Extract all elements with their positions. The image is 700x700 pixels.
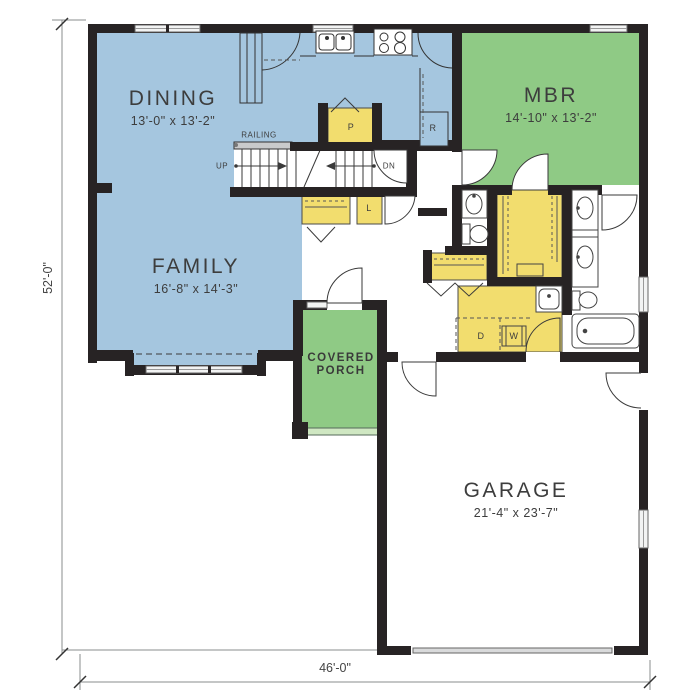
window-mullion (208, 366, 211, 373)
porch-label-line2: PORCH (316, 365, 365, 377)
utility-sink (536, 286, 562, 312)
wall-segment (377, 308, 387, 655)
service-door-opening (639, 373, 648, 410)
wall-segment (418, 208, 447, 216)
garage-door-panel (413, 648, 612, 653)
porch-step (306, 428, 383, 435)
wall-segment (452, 24, 462, 152)
laundry-door-opening (526, 352, 560, 362)
wall-segment (406, 147, 417, 197)
railing-newel (234, 143, 238, 147)
stair-railing (234, 142, 292, 149)
garage-entry-door (402, 362, 436, 396)
hall-door (385, 196, 415, 224)
linen-label: L (366, 203, 372, 213)
wall-segment (487, 185, 497, 282)
porch-label-line1: COVERED (307, 352, 374, 364)
master-vanity (572, 190, 598, 287)
wall-segment (562, 185, 572, 315)
up-label: UP (216, 162, 228, 171)
master-bath-door (602, 195, 637, 230)
pantry-label: P (348, 122, 355, 132)
front-door (327, 268, 362, 303)
hall-closet-floor (431, 253, 487, 280)
wall-segment (423, 250, 432, 283)
wall-segment (293, 308, 302, 424)
garage-label: GARAGE (464, 479, 569, 503)
wall-segment (290, 142, 382, 151)
mbr-label: MBR (524, 84, 578, 108)
mbr-size: 14'-10" x 13'-2" (505, 111, 597, 125)
floor-plan-drawing (0, 0, 700, 700)
master-toilet (579, 292, 597, 308)
hall-bath-toilet (470, 226, 488, 243)
dining-size: 13'-0" x 13'-2" (131, 114, 215, 128)
coat-closet-bifold (307, 227, 335, 242)
window-mullion (166, 25, 169, 32)
wall-segment (318, 103, 328, 148)
wall-segment (487, 277, 572, 286)
front-door-sidelight (307, 302, 327, 308)
garage-service-door (606, 373, 641, 408)
dryer-label: D (478, 331, 485, 341)
garage-entry-opening (398, 352, 436, 362)
hall-bath-toilet-tank (462, 224, 470, 244)
wall-segment (88, 183, 112, 193)
tall-cabinet (240, 33, 262, 103)
washer-label: W (510, 331, 519, 341)
stove (374, 29, 412, 55)
railing-label: RAILING (241, 131, 277, 140)
wall-segment (452, 185, 462, 252)
refrigerator-label: R (430, 123, 437, 133)
wall-segment (445, 246, 492, 255)
wall-segment (88, 24, 97, 363)
width-dimension-label: 46'-0" (319, 661, 351, 675)
dining-label: DINING (129, 87, 218, 111)
height-dimension-label: 52'-0" (41, 262, 55, 294)
family-size: 16'-8" x 14'-3" (154, 282, 238, 296)
window-mullion (176, 366, 179, 373)
dn-label: DN (383, 162, 396, 171)
porch-post (292, 422, 308, 439)
garage-size: 21'-4" x 23'-7" (474, 506, 558, 520)
floor-plan: DINING 13'-0" x 13'-2" FAMILY 16'-8" x 1… (0, 0, 700, 700)
family-label: FAMILY (152, 255, 240, 279)
wall-segment (639, 24, 648, 655)
bathtub (572, 314, 639, 348)
